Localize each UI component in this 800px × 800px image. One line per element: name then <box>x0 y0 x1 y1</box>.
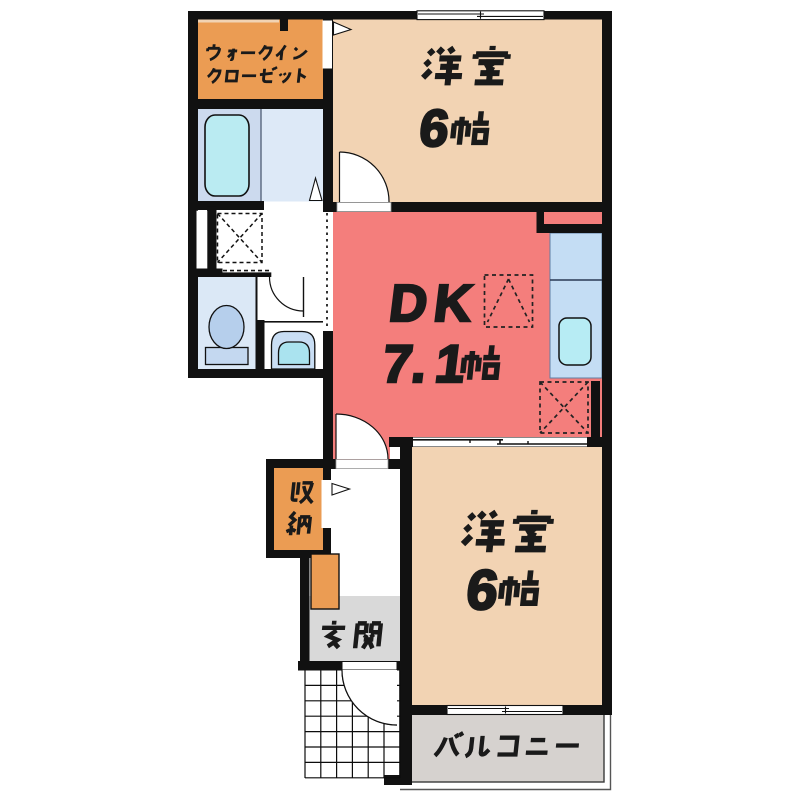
svg-text:6: 6 <box>464 558 502 621</box>
svg-text:6: 6 <box>417 100 452 158</box>
svg-text:DK: DK <box>386 275 482 333</box>
svg-text:7.: 7. <box>379 335 430 394</box>
